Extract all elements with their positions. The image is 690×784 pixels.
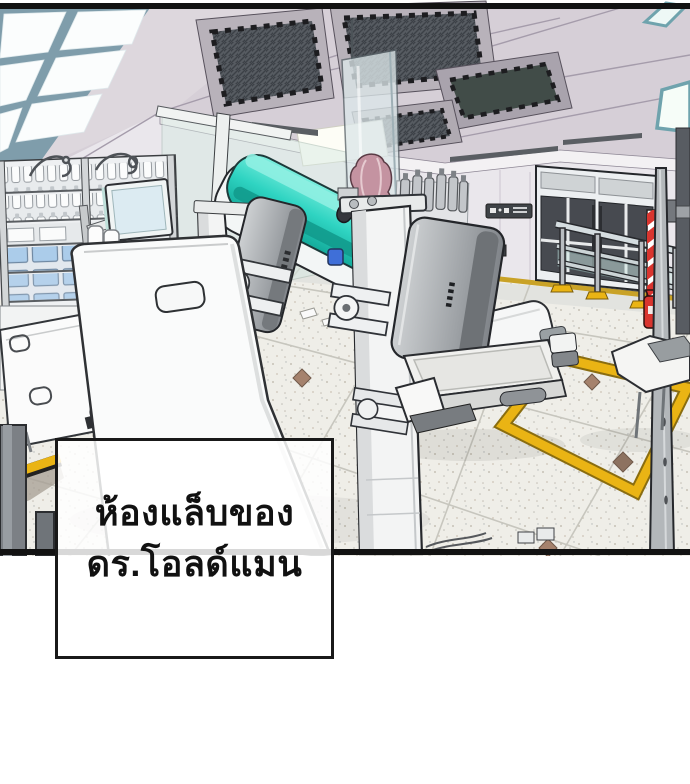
caption-box: ห้องแล็บของ ดร.โอลด์แมน bbox=[55, 438, 334, 659]
blue-bucket bbox=[328, 249, 343, 265]
caption-text-line1: ห้องแล็บของ bbox=[95, 487, 294, 538]
ceiling-vent bbox=[196, 8, 334, 118]
ceiling-light-panel bbox=[657, 82, 690, 132]
monitor-screen bbox=[112, 185, 166, 234]
armrest-piece bbox=[155, 281, 206, 313]
caption-text-line2: ดร.โอลด์แมน bbox=[87, 538, 303, 589]
panel-border-top bbox=[0, 3, 690, 9]
wall-sign bbox=[486, 204, 532, 218]
